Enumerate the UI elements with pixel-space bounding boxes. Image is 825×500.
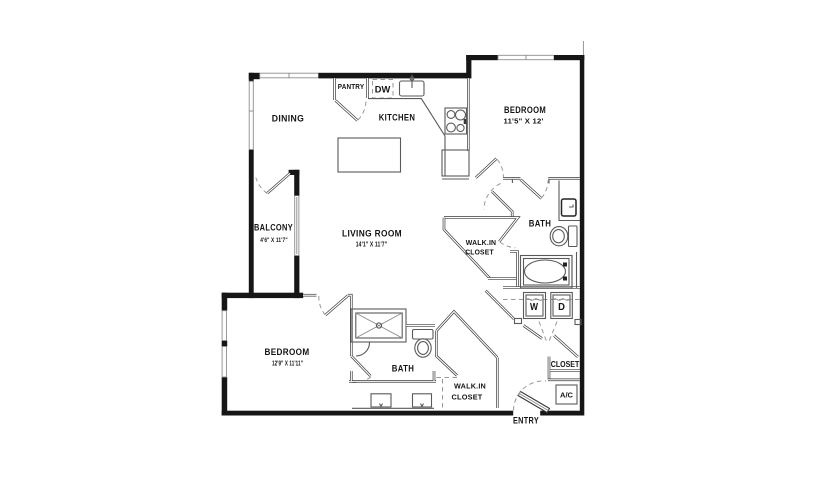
svg-text:ENTRY: ENTRY <box>513 416 539 426</box>
svg-text:CLOSET: CLOSET <box>465 248 494 257</box>
svg-text:PANTRY: PANTRY <box>338 82 365 91</box>
svg-text:BEDROOM: BEDROOM <box>265 347 310 357</box>
svg-text:CLOSET: CLOSET <box>551 360 580 369</box>
svg-text:DINING: DINING <box>272 114 305 124</box>
svg-text:BEDROOM: BEDROOM <box>504 105 546 115</box>
svg-text:A/C: A/C <box>560 393 573 400</box>
svg-text:W: W <box>530 302 538 313</box>
svg-text:LIVING ROOM: LIVING ROOM <box>342 229 402 239</box>
svg-text:12'9" X 11'11": 12'9" X 11'11" <box>272 361 303 368</box>
svg-text:KITCHEN: KITCHEN <box>379 113 416 123</box>
svg-text:D: D <box>558 302 565 313</box>
svg-text:WALK.IN: WALK.IN <box>466 238 497 247</box>
svg-text:11'5" X 12': 11'5" X 12' <box>504 119 544 126</box>
svg-text:CLOSET: CLOSET <box>452 393 483 402</box>
svg-text:4'6" X 11'7": 4'6" X 11'7" <box>260 237 288 244</box>
svg-text:14'1" X 11'7": 14'1" X 11'7" <box>356 242 388 249</box>
svg-text:BALCONY: BALCONY <box>254 223 293 233</box>
svg-text:BATH: BATH <box>529 219 552 229</box>
svg-text:WALK.IN: WALK.IN <box>454 382 486 391</box>
svg-text:BATH: BATH <box>392 364 415 374</box>
svg-text:DW: DW <box>375 84 391 95</box>
